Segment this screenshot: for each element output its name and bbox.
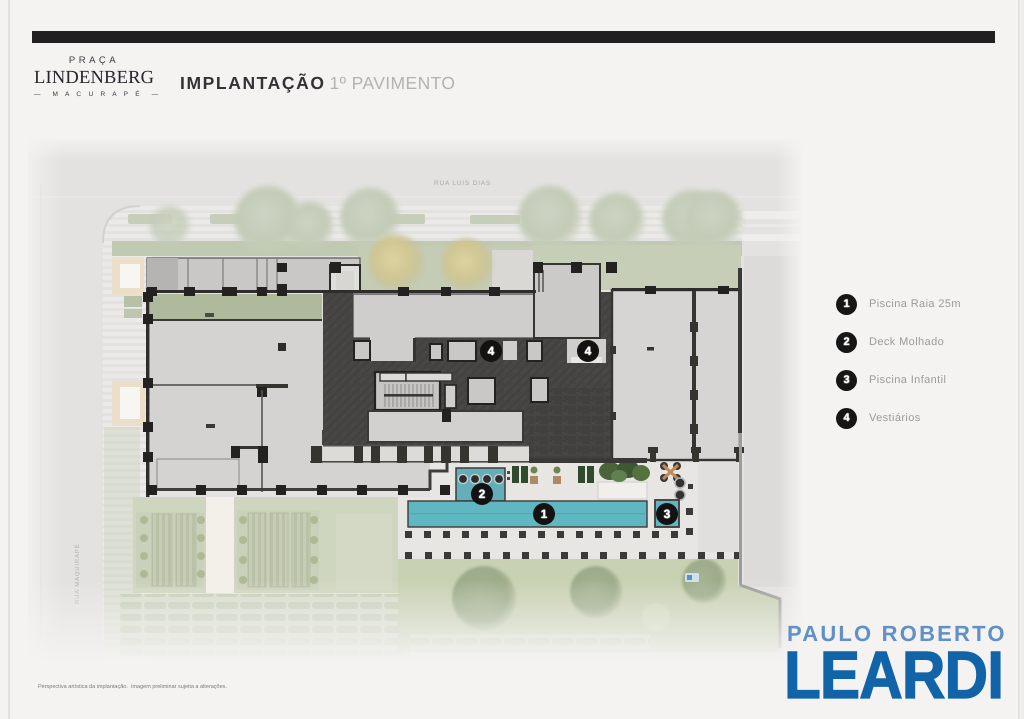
svg-text:RUA LUIS DIAS: RUA LUIS DIAS [434,180,491,187]
